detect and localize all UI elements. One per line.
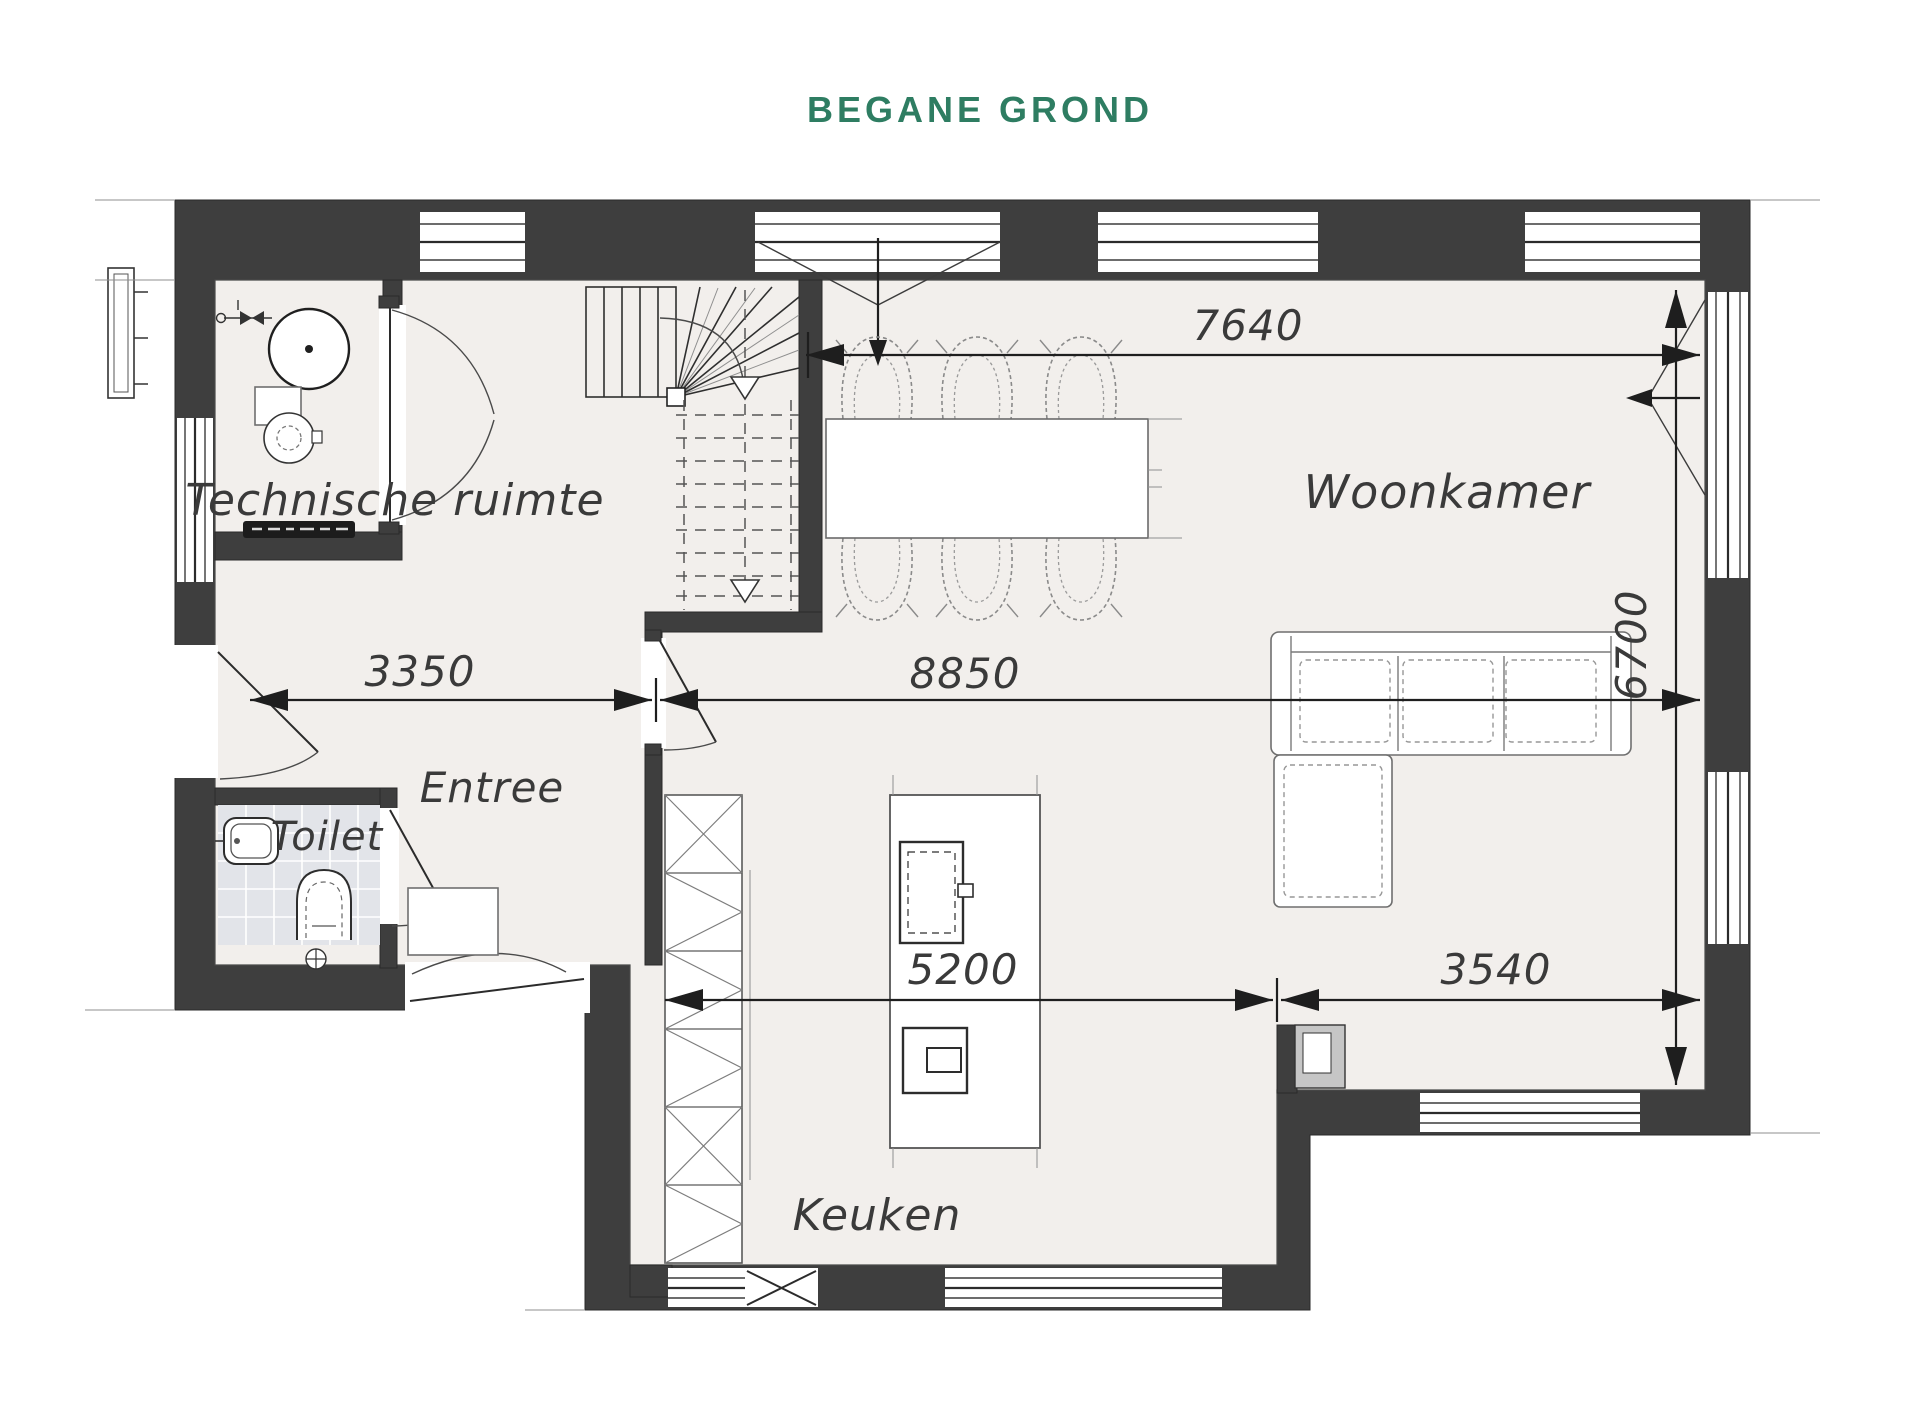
page-title: BEGANE GROND bbox=[807, 89, 1153, 130]
sofa-chaise bbox=[1274, 755, 1392, 907]
room-label-technische-ruimte: Technische ruimte bbox=[185, 475, 604, 526]
dim-text-6700: 6700 bbox=[1607, 590, 1656, 701]
washbasin-icon bbox=[215, 818, 278, 864]
dim-text-3350: 3350 bbox=[365, 647, 476, 696]
tall-cabinets bbox=[665, 795, 750, 1263]
window-kitchen-2 bbox=[945, 1268, 1222, 1307]
floor-plan-drawing: 7640 3350 8850 6700 5200 bbox=[0, 0, 1920, 1411]
boiler-center-dot bbox=[305, 345, 313, 353]
room-label-keuken: Keuken bbox=[793, 1190, 962, 1241]
room-label-entree: Entree bbox=[420, 763, 565, 812]
window-top-1 bbox=[420, 212, 525, 272]
dim-text-5200: 5200 bbox=[908, 945, 1019, 994]
dining-table bbox=[826, 419, 1148, 538]
window-right-upper bbox=[1708, 292, 1748, 578]
window-kitchen-1 bbox=[668, 1268, 745, 1307]
chimney-wall-stub bbox=[1277, 1025, 1297, 1093]
chimney bbox=[1295, 1025, 1345, 1088]
toilet-bowl-icon bbox=[297, 870, 351, 940]
radiator-symbol-outside bbox=[108, 268, 148, 398]
kitchen-french-door bbox=[745, 1268, 818, 1307]
toilet-wall-top bbox=[215, 788, 397, 805]
window-right-lower bbox=[1708, 772, 1748, 944]
dim-text-3540: 3540 bbox=[1441, 945, 1552, 994]
kitchen-corner-stub bbox=[630, 1265, 672, 1297]
sofa-body bbox=[1271, 632, 1631, 755]
window-top-4 bbox=[1525, 212, 1700, 272]
stair-wall-right bbox=[799, 280, 822, 632]
dim-text-7640: 7640 bbox=[1193, 301, 1304, 350]
stair-wall-bottom bbox=[645, 612, 822, 632]
entree-garden-door bbox=[405, 953, 590, 1013]
room-label-toilet: Toilet bbox=[271, 814, 384, 860]
floor-plan-sheet: 7640 3350 8850 6700 5200 bbox=[0, 0, 1920, 1411]
stair-newel bbox=[667, 388, 685, 406]
entree-cabinet bbox=[408, 888, 498, 955]
window-living-south bbox=[1420, 1093, 1640, 1132]
floor-drain-icon bbox=[306, 949, 326, 969]
window-top-3 bbox=[1098, 212, 1318, 272]
room-label-woonkamer: Woonkamer bbox=[1304, 465, 1593, 519]
dim-text-8850: 8850 bbox=[910, 649, 1021, 698]
